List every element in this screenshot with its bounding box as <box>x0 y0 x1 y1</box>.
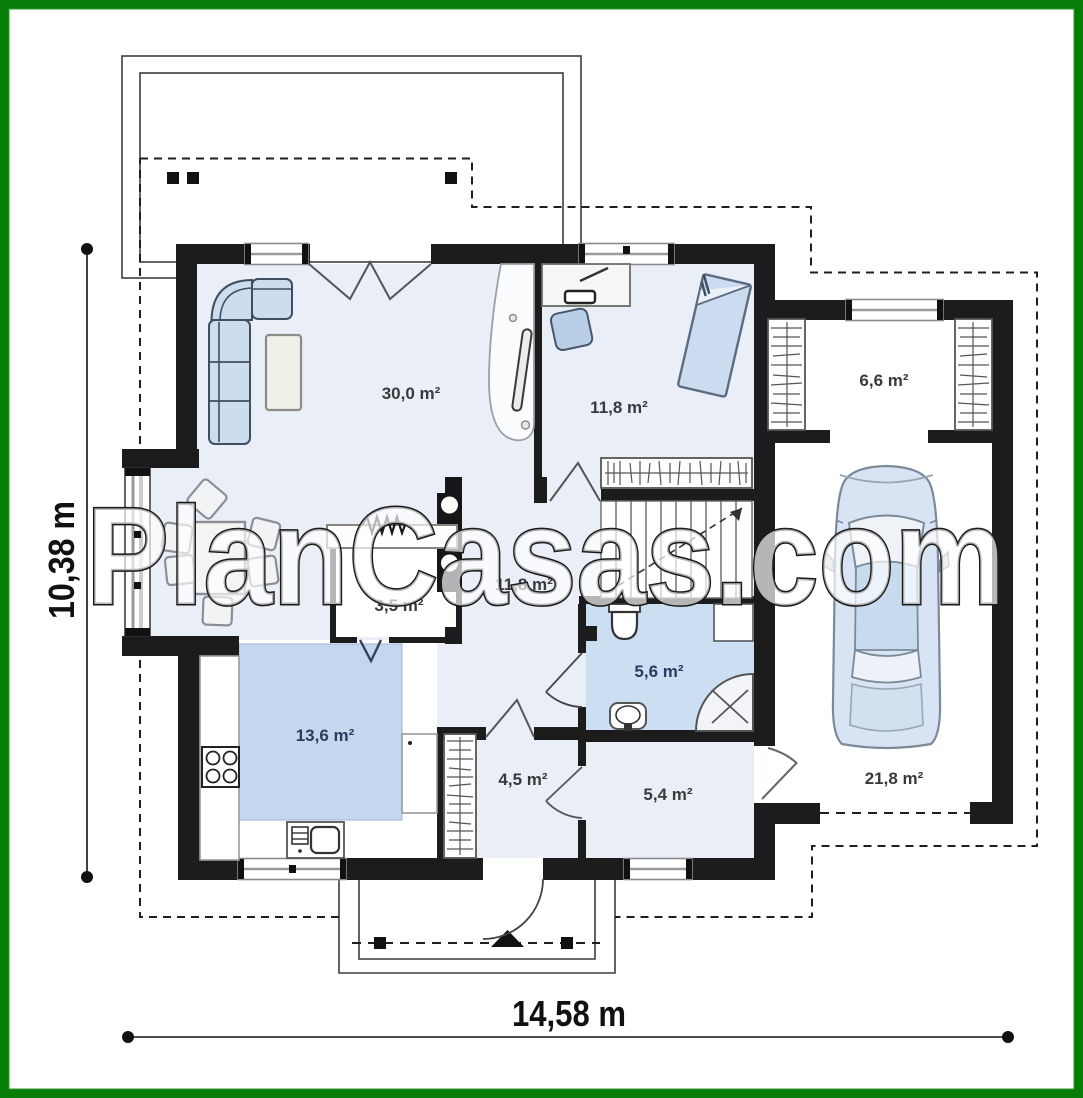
svg-text:21,8 m²: 21,8 m² <box>865 769 924 788</box>
svg-text:5,4 m²: 5,4 m² <box>643 785 692 804</box>
svg-text:14,58 m: 14,58 m <box>512 993 626 1034</box>
svg-text:13,6 m²: 13,6 m² <box>296 726 355 745</box>
svg-text:PlanCasas.com: PlanCasas.com <box>86 479 1005 634</box>
svg-text:11,8 m²: 11,8 m² <box>590 398 648 417</box>
svg-text:5,6 m²: 5,6 m² <box>634 662 683 681</box>
svg-text:10,38 m: 10,38 m <box>41 501 82 619</box>
svg-text:30,0 m²: 30,0 m² <box>382 384 441 403</box>
svg-text:4,5 m²: 4,5 m² <box>498 770 547 789</box>
svg-text:6,6 m²: 6,6 m² <box>859 371 908 390</box>
